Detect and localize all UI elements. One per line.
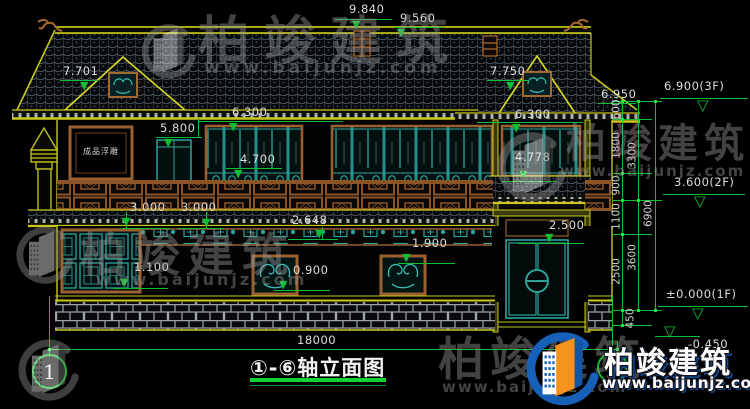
dimension-label: 9.840	[349, 3, 384, 15]
elevation-label: ±0.000(1F)	[666, 288, 736, 300]
brand-logo-icon	[526, 332, 600, 409]
dim-tick	[637, 199, 640, 202]
dimension-label: 5.800	[160, 122, 195, 134]
dimension-label: 7.750	[490, 65, 525, 77]
dim-line	[501, 181, 556, 182]
title-underline-thin	[250, 385, 386, 386]
elevation-label: 3.600(2F)	[674, 176, 734, 188]
dimension-label: 6.300	[515, 108, 550, 120]
dim-tick	[637, 100, 640, 103]
dim-arrow-icon: ▼	[397, 28, 405, 38]
dimension-label: 4.778	[515, 151, 550, 163]
dim-arrow-icon: ▼	[352, 20, 360, 30]
dim-extension-line	[198, 118, 199, 138]
dim-arrow-icon: ▼	[519, 170, 527, 180]
dimension-label-vertical: 3600	[628, 236, 639, 280]
dimension-label-vertical: 2500	[612, 250, 623, 294]
dim-line	[156, 137, 202, 138]
dim-arrow-icon: ▼	[402, 253, 410, 263]
dimension-label: 6.300	[232, 106, 267, 118]
dim-arrow-icon: ▼	[315, 229, 323, 239]
dim-tick	[654, 100, 657, 103]
elevation-label: 6.900(3F)	[664, 80, 724, 92]
dimension-label: 2.500	[549, 219, 584, 231]
dimension-label-vertical: 1100	[612, 195, 623, 239]
brand-url: www.baijunjz.com	[602, 374, 750, 392]
dim-line	[288, 239, 338, 240]
dimension-label: 1.100	[134, 261, 169, 273]
dim-line	[178, 228, 224, 229]
dimension-label-vertical: 1800	[612, 124, 623, 168]
dim-tick	[637, 309, 640, 312]
dim-arrow-icon: ▼	[512, 123, 520, 133]
dim-tick	[654, 309, 657, 312]
dimension-label-vertical: 6900	[644, 192, 655, 236]
elevation-triangle-icon: ▽	[692, 307, 704, 320]
dim-line	[335, 19, 392, 20]
dim-line	[60, 80, 98, 81]
dimension-label: 9.560	[400, 12, 435, 24]
dim-arrow-icon: ▼	[120, 278, 128, 288]
dim-arrow-icon: ▼	[234, 169, 242, 179]
title-underline	[250, 378, 386, 382]
dim-line	[198, 121, 343, 122]
dim-line	[477, 122, 583, 123]
dimension-label: 3.000	[130, 201, 165, 213]
elevation-triangle-icon: ▽	[697, 99, 709, 112]
dim-arrow-icon: ▼	[202, 218, 210, 228]
dimension-label: 3.000	[181, 201, 216, 213]
dimension-label: 0.900	[293, 264, 328, 276]
dim-arrow-icon: ▼	[506, 81, 514, 91]
dimension-label: 4.700	[240, 153, 275, 165]
dimension-label: 18000	[297, 334, 336, 346]
dim-arrow-icon: ▼	[122, 217, 130, 227]
dimension-label: 7.701	[63, 65, 98, 77]
dim-arrow-icon: ▼	[279, 280, 287, 290]
dim-arrow-icon: ▼	[164, 138, 172, 148]
dim-extension-line	[655, 101, 656, 310]
dim-line	[122, 228, 170, 229]
dimension-label-vertical: 3300	[628, 134, 639, 178]
dim-tick	[48, 348, 51, 351]
dim-arrow-icon: ▼	[229, 122, 237, 132]
dim-arrow-icon: ▼	[545, 233, 553, 243]
cad-elevation-screenshot: 成品浮雕 9.840▼9.560▼7.701▼7.750▼6.9506.300▼…	[0, 0, 750, 409]
dimension-label: 2.648	[292, 214, 327, 226]
dimension-label: 1.900	[412, 237, 447, 249]
dim-arrow-icon: ▼	[80, 81, 88, 91]
elevation-triangle-icon: ▽	[694, 195, 706, 208]
relief-panel-label: 成品浮雕	[70, 147, 132, 157]
brand-logo: 柏竣建筑 www.baijunjz.com	[518, 330, 750, 409]
